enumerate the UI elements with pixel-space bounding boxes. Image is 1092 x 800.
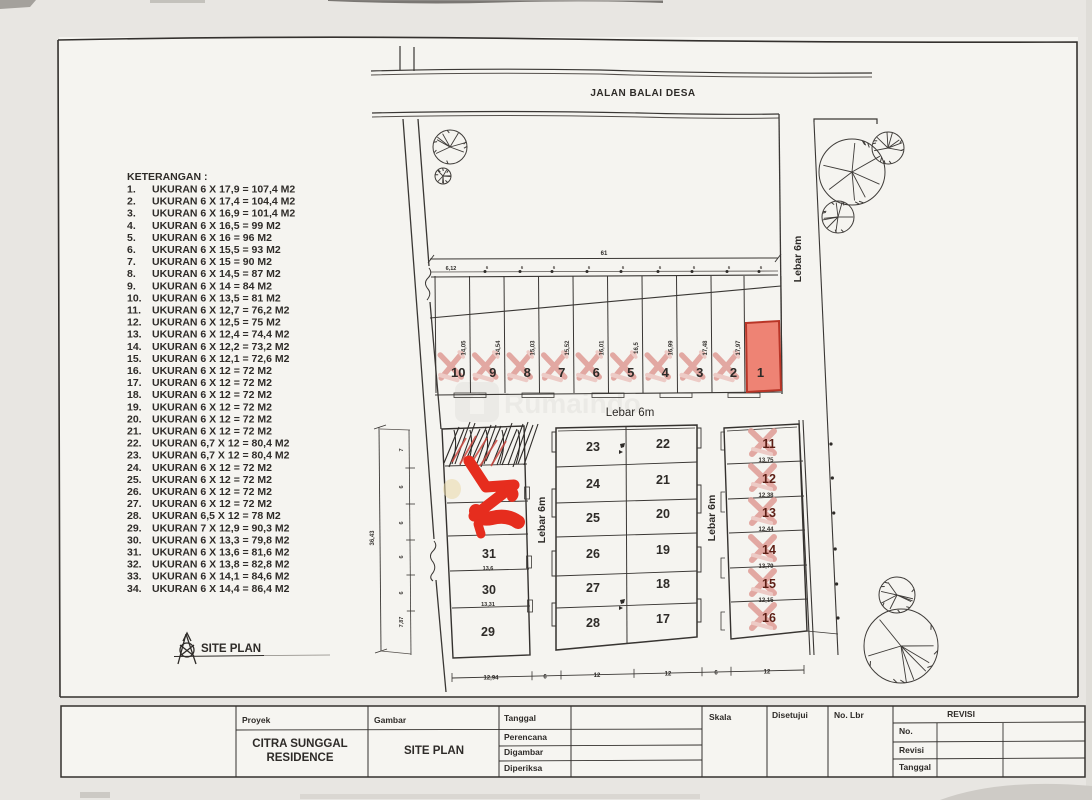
svg-text:15,52: 15,52 <box>565 340 571 356</box>
svg-text:7: 7 <box>399 448 405 451</box>
svg-text:20: 20 <box>656 507 670 521</box>
svg-text:5: 5 <box>627 365 634 380</box>
svg-text:Lebar 6m: Lebar 6m <box>792 236 804 283</box>
svg-text:UKURAN 6 X 14,5 = 87 M2: UKURAN 6 X 14,5 = 87 M2 <box>152 268 281 280</box>
svg-text:UKURAN 6 X 15 = 90 M2: UKURAN 6 X 15 = 90 M2 <box>152 256 272 268</box>
svg-text:12,44: 12,44 <box>758 527 774 533</box>
svg-text:26.: 26. <box>127 486 142 498</box>
svg-text:15,03: 15,03 <box>531 340 537 356</box>
svg-text:14,54: 14,54 <box>496 340 502 356</box>
svg-text:12: 12 <box>665 672 672 678</box>
svg-text:24: 24 <box>586 477 600 491</box>
svg-text:Gambar: Gambar <box>374 715 407 725</box>
svg-text:11.: 11. <box>127 305 141 317</box>
svg-text:6: 6 <box>593 365 600 380</box>
svg-text:Disetujui: Disetujui <box>772 710 808 720</box>
svg-text:32.: 32. <box>127 559 142 571</box>
svg-text:Digambar: Digambar <box>504 747 544 757</box>
svg-text:9.: 9. <box>127 280 136 292</box>
svg-text:Lebar 6m: Lebar 6m <box>536 497 548 544</box>
svg-text:UKURAN 7 X 12,9 = 90,3 M2: UKURAN 7 X 12,9 = 90,3 M2 <box>152 522 290 534</box>
svg-text:1: 1 <box>757 365 764 380</box>
svg-text:19: 19 <box>656 543 670 557</box>
svg-text:19.: 19. <box>127 401 142 413</box>
svg-text:CITRA SUNGGAL: CITRA SUNGGAL <box>252 738 347 750</box>
svg-text:28: 28 <box>586 616 600 630</box>
svg-text:29.: 29. <box>127 522 142 534</box>
svg-text:33.: 33. <box>127 571 142 583</box>
svg-text:13,75: 13,75 <box>758 458 774 464</box>
svg-text:UKURAN 6 X 12 = 72 M2: UKURAN 6 X 12 = 72 M2 <box>152 413 272 425</box>
svg-text:UKURAN 6 X 12 = 72 M2: UKURAN 6 X 12 = 72 M2 <box>152 486 272 498</box>
svg-text:JALAN BALAI DESA: JALAN BALAI DESA <box>590 88 695 99</box>
svg-text:REVISI: REVISI <box>947 709 975 719</box>
svg-text:25.: 25. <box>127 474 142 486</box>
svg-text:34.: 34. <box>127 583 142 595</box>
svg-text:13: 13 <box>762 506 776 520</box>
svg-text:16,99: 16,99 <box>669 340 675 356</box>
svg-text:15: 15 <box>762 577 776 591</box>
svg-text:UKURAN 6 X 12 = 72 M2: UKURAN 6 X 12 = 72 M2 <box>152 426 272 438</box>
svg-text:22: 22 <box>656 437 670 451</box>
svg-text:16,5: 16,5 <box>634 342 640 354</box>
svg-text:24.: 24. <box>127 462 142 474</box>
svg-text:UKURAN 6 X 12 = 72 M2: UKURAN 6 X 12 = 72 M2 <box>152 474 272 486</box>
svg-text:Perencana: Perencana <box>504 732 547 742</box>
svg-text:Diperiksa: Diperiksa <box>504 763 543 773</box>
svg-text:6: 6 <box>399 555 405 558</box>
svg-text:16.: 16. <box>127 365 142 377</box>
svg-text:28.: 28. <box>127 510 142 522</box>
svg-text:2.: 2. <box>127 196 136 208</box>
svg-text:UKURAN 6 X 12,2 = 73,2 M2: UKURAN 6 X 12,2 = 73,2 M2 <box>152 341 290 353</box>
svg-text:UKURAN 6 X 13,6 = 81,6 M2: UKURAN 6 X 13,6 = 81,6 M2 <box>152 547 290 559</box>
svg-text:UKURAN 6 X 12 = 72 M2: UKURAN 6 X 12 = 72 M2 <box>152 389 272 401</box>
svg-text:UKURAN 6 X 17,9 = 107,4 M2: UKURAN 6 X 17,9 = 107,4 M2 <box>152 184 295 196</box>
svg-text:UKURAN 6 X 16,5 = 99 M2: UKURAN 6 X 16,5 = 99 M2 <box>152 220 281 232</box>
svg-text:Tanggal: Tanggal <box>899 762 931 772</box>
svg-text:2: 2 <box>730 365 737 380</box>
svg-text:10.: 10. <box>127 292 142 304</box>
svg-text:UKURAN 6,5 X 12 = 78 M2: UKURAN 6,5 X 12 = 78 M2 <box>152 510 281 522</box>
svg-text:3.: 3. <box>127 208 136 220</box>
svg-text:Tanggal: Tanggal <box>504 713 536 723</box>
svg-text:12: 12 <box>594 673 601 679</box>
svg-text:UKURAN 6 X 14 = 84 M2: UKURAN 6 X 14 = 84 M2 <box>152 280 272 292</box>
svg-text:UKURAN 6 X 12,4 = 74,4 M2: UKURAN 6 X 12,4 = 74,4 M2 <box>152 329 290 341</box>
svg-text:21.: 21. <box>127 426 142 438</box>
svg-text:9: 9 <box>489 365 496 380</box>
svg-text:14,05: 14,05 <box>462 340 468 356</box>
svg-text:RESIDENCE: RESIDENCE <box>266 752 333 764</box>
svg-text:UKURAN 6 X 14,4 = 86,4 M2: UKURAN 6 X 14,4 = 86,4 M2 <box>152 583 290 595</box>
svg-text:30.: 30. <box>127 534 142 546</box>
svg-text:UKURAN 6 X 12 = 72 M2: UKURAN 6 X 12 = 72 M2 <box>152 377 272 389</box>
svg-text:UKURAN 6 X 12 = 72 M2: UKURAN 6 X 12 = 72 M2 <box>152 365 272 377</box>
svg-text:23.: 23. <box>127 450 142 462</box>
svg-text:36,43: 36,43 <box>370 530 376 546</box>
svg-text:15.: 15. <box>127 353 142 365</box>
svg-text:12,94: 12,94 <box>483 676 499 682</box>
svg-text:UKURAN 6 X 16,9 = 101,4 M2: UKURAN 6 X 16,9 = 101,4 M2 <box>152 208 295 220</box>
svg-text:UKURAN 6 X 15,5 = 93 M2: UKURAN 6 X 15,5 = 93 M2 <box>152 244 281 256</box>
svg-text:UKURAN 6 X 12,7 = 76,2 M2: UKURAN 6 X 12,7 = 76,2 M2 <box>152 305 290 317</box>
svg-text:13,31: 13,31 <box>481 602 495 608</box>
svg-text:7.: 7. <box>127 256 136 268</box>
svg-text:13,6: 13,6 <box>483 566 494 572</box>
svg-text:61: 61 <box>601 251 608 257</box>
svg-text:18: 18 <box>656 577 670 591</box>
svg-text:No.: No. <box>899 726 913 736</box>
svg-text:30: 30 <box>482 583 496 597</box>
svg-text:6: 6 <box>399 521 405 524</box>
svg-text:UKURAN 6 X 14,1 = 84,6 M2: UKURAN 6 X 14,1 = 84,6 M2 <box>152 571 290 583</box>
svg-text:11: 11 <box>762 437 775 451</box>
svg-text:17,97: 17,97 <box>736 340 742 356</box>
svg-text:12: 12 <box>764 669 771 675</box>
svg-text:25: 25 <box>586 511 600 525</box>
svg-text:12: 12 <box>762 472 776 486</box>
svg-text:4.: 4. <box>127 220 136 232</box>
svg-text:31: 31 <box>482 547 496 561</box>
svg-text:UKURAN 6 X 17,4 = 104,4 M2: UKURAN 6 X 17,4 = 104,4 M2 <box>152 196 295 208</box>
svg-text:29: 29 <box>481 625 495 639</box>
svg-text:UKURAN 6 X 12 = 72 M2: UKURAN 6 X 12 = 72 M2 <box>152 498 272 510</box>
svg-text:14: 14 <box>762 543 776 557</box>
svg-text:UKURAN 6 X 12,5 = 75 M2: UKURAN 6 X 12,5 = 75 M2 <box>152 317 281 329</box>
svg-text:8.: 8. <box>127 268 136 280</box>
svg-text:6.: 6. <box>127 244 136 256</box>
svg-text:UKURAN 6 X 12 = 72 M2: UKURAN 6 X 12 = 72 M2 <box>152 401 272 413</box>
svg-text:Lebar 6m: Lebar 6m <box>606 407 655 419</box>
svg-text:UKURAN 6 X 13,5 = 81 M2: UKURAN 6 X 13,5 = 81 M2 <box>152 292 281 304</box>
svg-text:26: 26 <box>586 547 600 561</box>
svg-text:20.: 20. <box>127 413 142 425</box>
svg-text:7: 7 <box>558 365 565 380</box>
svg-text:SITE PLAN: SITE PLAN <box>201 643 261 655</box>
svg-text:21: 21 <box>656 473 670 487</box>
svg-text:Lebar 6m: Lebar 6m <box>706 495 718 542</box>
svg-text:KETERANGAN :: KETERANGAN : <box>127 171 208 183</box>
svg-text:UKURAN 6 X 13,8 = 82,8 M2: UKURAN 6 X 13,8 = 82,8 M2 <box>152 559 290 571</box>
svg-text:17.: 17. <box>127 377 142 389</box>
svg-text:Revisi: Revisi <box>899 745 924 755</box>
svg-text:No. Lbr: No. Lbr <box>834 710 864 720</box>
svg-text:23: 23 <box>586 440 600 454</box>
svg-text:18.: 18. <box>127 389 142 401</box>
svg-text:UKURAN 6 X 16 = 96 M2: UKURAN 6 X 16 = 96 M2 <box>152 232 272 244</box>
svg-text:UKURAN 6 X 12 = 72 M2: UKURAN 6 X 12 = 72 M2 <box>152 462 272 474</box>
svg-text:17,48: 17,48 <box>703 340 709 356</box>
svg-text:6,12: 6,12 <box>446 266 457 272</box>
svg-text:Proyek: Proyek <box>242 715 271 725</box>
svg-text:6: 6 <box>399 485 405 488</box>
svg-text:1.: 1. <box>127 184 136 196</box>
svg-text:27: 27 <box>586 581 600 595</box>
svg-text:17: 17 <box>656 612 670 626</box>
svg-text:4: 4 <box>662 365 670 380</box>
svg-text:UKURAN 6,7 X 12 = 80,4 M2: UKURAN 6,7 X 12 = 80,4 M2 <box>152 450 290 462</box>
svg-text:UKURAN 6 X 12,1 = 72,6 M2: UKURAN 6 X 12,1 = 72,6 M2 <box>152 353 290 365</box>
svg-text:22.: 22. <box>127 438 142 450</box>
svg-text:Skala: Skala <box>709 712 731 722</box>
svg-text:5.: 5. <box>127 232 136 244</box>
svg-text:UKURAN 6,7 X 12 = 80,4 M2: UKURAN 6,7 X 12 = 80,4 M2 <box>152 438 290 450</box>
svg-text:SITE PLAN: SITE PLAN <box>404 745 464 757</box>
svg-text:13.: 13. <box>127 329 142 341</box>
svg-text:6: 6 <box>399 591 405 594</box>
svg-text:12.: 12. <box>127 317 142 329</box>
svg-text:16,01: 16,01 <box>600 340 606 356</box>
svg-text:3: 3 <box>696 365 703 380</box>
svg-text:14.: 14. <box>127 341 142 353</box>
svg-text:31.: 31. <box>127 547 142 559</box>
svg-text:7,87: 7,87 <box>399 617 405 628</box>
svg-text:UKURAN 6 X 13,3 = 79,8 M2: UKURAN 6 X 13,3 = 79,8 M2 <box>152 534 290 546</box>
svg-text:10: 10 <box>451 365 465 380</box>
svg-text:27.: 27. <box>127 498 142 510</box>
svg-text:16: 16 <box>762 611 776 625</box>
svg-text:8: 8 <box>524 365 531 380</box>
